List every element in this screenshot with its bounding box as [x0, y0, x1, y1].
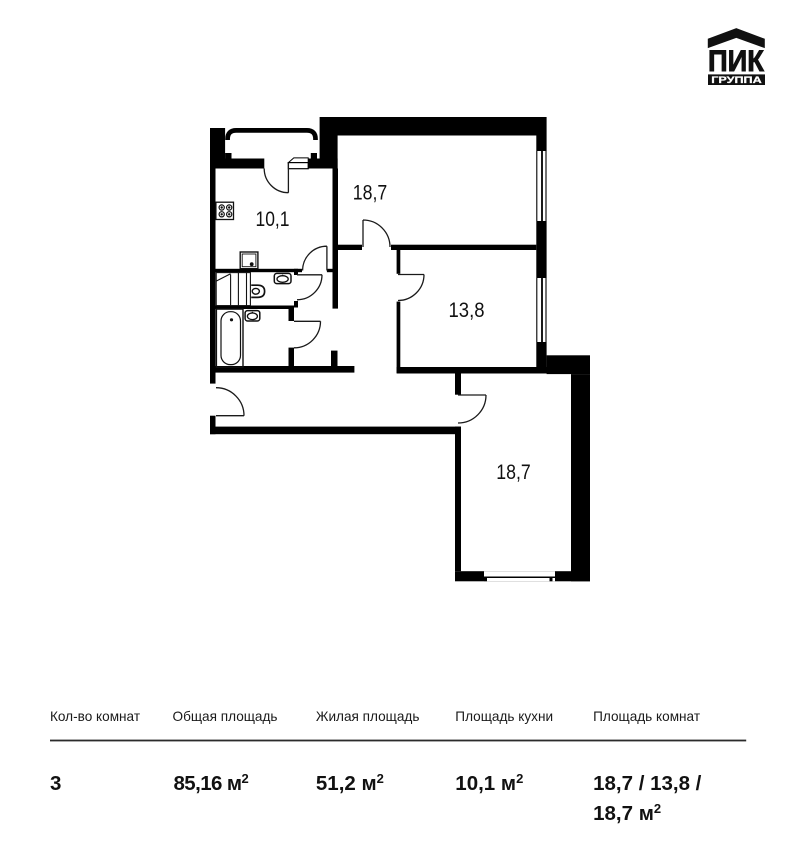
svg-text:13,8: 13,8 — [449, 298, 485, 322]
svg-text:Площадь кухни: Площадь кухни — [455, 709, 553, 724]
svg-text:85,16 м2: 85,16 м2 — [174, 771, 249, 795]
svg-text:Кол-во комнат: Кол-во комнат — [50, 709, 140, 724]
svg-text:51,2 м2: 51,2 м2 — [316, 771, 384, 795]
svg-text:Жилая площадь: Жилая площадь — [316, 709, 420, 724]
svg-text:10,1 м2: 10,1 м2 — [455, 771, 523, 795]
svg-text:18,7 м2: 18,7 м2 — [593, 801, 661, 825]
svg-text:ГРУППА: ГРУППА — [711, 75, 762, 85]
svg-text:Площадь комнат: Площадь комнат — [593, 709, 700, 724]
svg-text:ПИК: ПИК — [708, 45, 765, 78]
svg-text:3: 3 — [50, 772, 61, 795]
svg-text:18,7: 18,7 — [496, 460, 531, 484]
svg-text:10,1: 10,1 — [256, 207, 290, 231]
svg-text:18,7 / 13,8 /: 18,7 / 13,8 / — [593, 772, 702, 795]
svg-text:Общая площадь: Общая площадь — [173, 709, 278, 724]
svg-text:18,7: 18,7 — [353, 180, 388, 204]
